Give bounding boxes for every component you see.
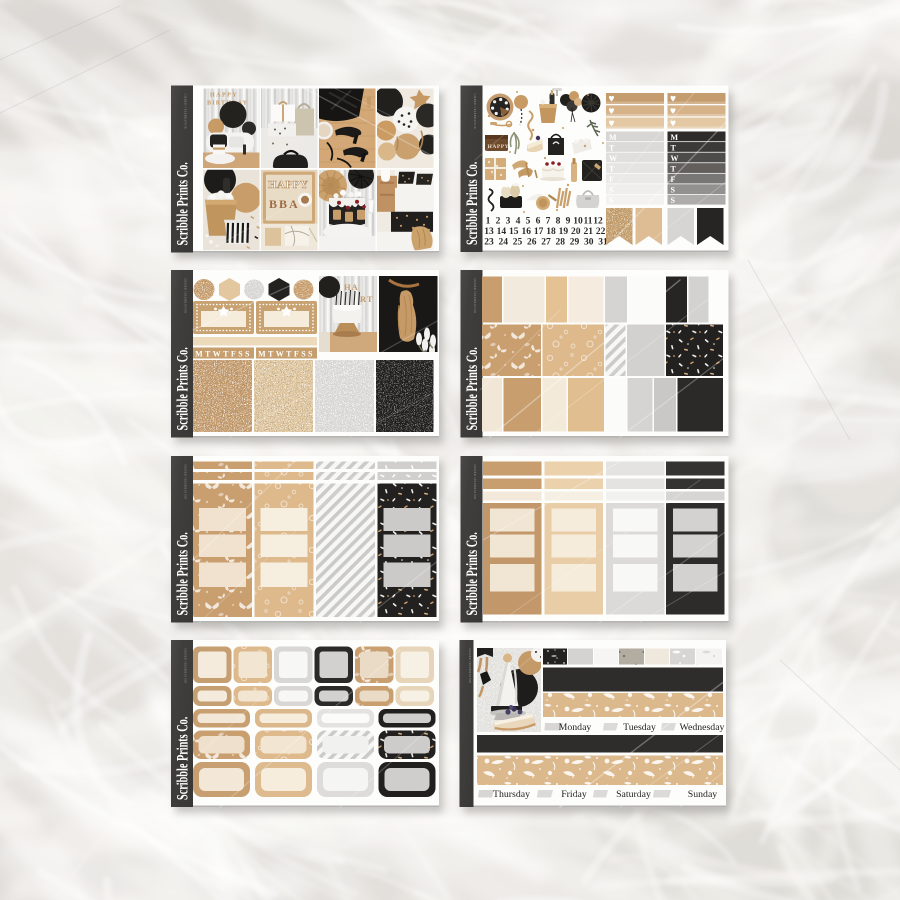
svg-text:22: 22 [596, 227, 606, 237]
svg-text:25: 25 [513, 238, 523, 248]
svg-text:13: 13 [484, 227, 494, 237]
svg-text:27: 27 [541, 238, 551, 248]
svg-text:Friday: Friday [561, 789, 587, 800]
svg-text:Thursday: Thursday [493, 789, 530, 800]
svg-text:M: M [671, 133, 679, 142]
svg-text:S: S [671, 186, 676, 195]
svg-text:T: T [671, 164, 677, 173]
svg-text:GILDED CELEBRATION: GILDED CELEBRATION [184, 278, 187, 314]
svg-text:Tuesday: Tuesday [623, 722, 656, 733]
svg-text:HAPPY: HAPPY [268, 179, 308, 191]
svg-text:GILDED CELEBRATION: GILDED CELEBRATION [473, 94, 476, 130]
svg-text:S: S [609, 196, 614, 205]
svg-text:HA: HA [344, 282, 359, 292]
svg-text:12: 12 [593, 217, 603, 227]
svg-text:Sunday: Sunday [688, 789, 717, 800]
svg-text:T: T [609, 164, 615, 173]
svg-text:Scribble Prints Co.: Scribble Prints Co. [463, 162, 481, 245]
svg-text:GILDED CELEBRATION: GILDED CELEBRATION [468, 648, 471, 684]
svg-text:Scribble Prints Co.: Scribble Prints Co. [463, 347, 481, 430]
svg-text:Monday: Monday [559, 722, 592, 733]
svg-text:Scribble Prints Co.: Scribble Prints Co. [173, 347, 191, 430]
svg-text:F: F [609, 175, 614, 184]
svg-text:26: 26 [527, 238, 537, 248]
svg-text:14: 14 [497, 227, 507, 237]
svg-text:GILDED CELEBRATION: GILDED CELEBRATION [473, 278, 476, 314]
svg-text:3: 3 [506, 217, 511, 227]
svg-text:24: 24 [499, 238, 509, 248]
svg-text:15: 15 [509, 227, 519, 237]
svg-text:GILDED CELEBRATION: GILDED CELEBRATION [184, 94, 187, 130]
svg-text:4: 4 [516, 217, 521, 227]
svg-text:18: 18 [546, 227, 556, 237]
svg-text:HAPPY: HAPPY [488, 144, 510, 150]
svg-text:GILDED CELEBRATION: GILDED CELEBRATION [473, 464, 476, 500]
svg-text:16: 16 [521, 227, 531, 237]
svg-text:17: 17 [534, 227, 544, 237]
svg-text:MTWTFSS: MTWTFSS [195, 350, 252, 359]
svg-text:HAPPY: HAPPY [210, 93, 238, 99]
svg-text:1: 1 [486, 217, 491, 227]
svg-text:Scribble Prints Co.: Scribble Prints Co. [463, 532, 481, 615]
svg-text:Scribble Prints Co.: Scribble Prints Co. [173, 717, 191, 800]
svg-text:6: 6 [536, 217, 541, 227]
svg-text:W: W [609, 154, 617, 163]
svg-text:RT: RT [360, 294, 374, 304]
svg-text:21: 21 [583, 227, 593, 237]
svg-text:S: S [671, 196, 676, 205]
svg-text:Scribble Prints Co.: Scribble Prints Co. [173, 162, 191, 245]
svg-text:7: 7 [546, 217, 551, 227]
svg-text:T: T [609, 143, 615, 152]
svg-text:5: 5 [526, 217, 531, 227]
svg-text:GILDED CELEBRATION: GILDED CELEBRATION [184, 648, 187, 684]
svg-text:T: T [671, 143, 677, 152]
svg-text:9: 9 [566, 217, 571, 227]
svg-text:W: W [671, 154, 679, 163]
svg-text:29: 29 [570, 238, 580, 248]
svg-text:M: M [609, 133, 617, 142]
svg-text:30: 30 [584, 238, 594, 248]
svg-text:Scribble Prints Co.: Scribble Prints Co. [173, 532, 191, 615]
svg-text:GILDED CELEBRATION: GILDED CELEBRATION [184, 464, 187, 500]
svg-text:19: 19 [559, 227, 569, 237]
svg-text:8: 8 [556, 217, 561, 227]
svg-text:23: 23 [484, 238, 494, 248]
svg-text:2: 2 [496, 217, 501, 227]
svg-text:Saturday: Saturday [616, 789, 651, 800]
svg-text:MTWTFSS: MTWTFSS [258, 350, 315, 359]
svg-text:Wednesday: Wednesday [680, 722, 725, 733]
